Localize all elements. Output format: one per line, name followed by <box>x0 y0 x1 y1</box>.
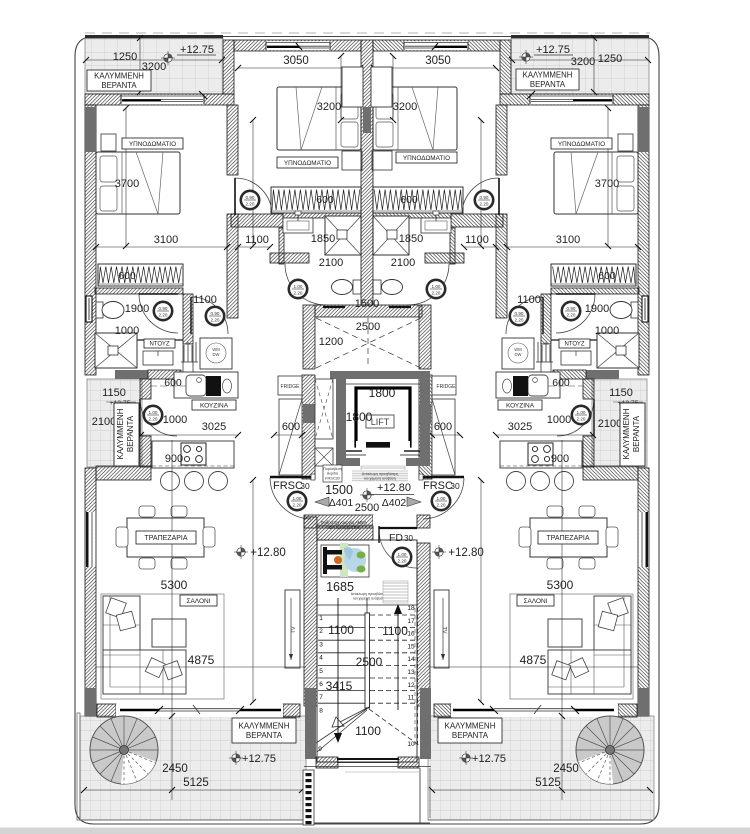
svg-text:1900: 1900 <box>585 303 609 315</box>
svg-text:1100: 1100 <box>245 234 269 246</box>
svg-text:1.00: 1.00 <box>149 410 158 415</box>
svg-text:1.00: 1.00 <box>577 410 586 415</box>
svg-text:3100: 3100 <box>556 234 580 246</box>
svg-text:TV: TV <box>291 626 297 633</box>
svg-text:2.20: 2.20 <box>149 416 158 421</box>
svg-text:4: 4 <box>319 655 323 662</box>
svg-text:2450: 2450 <box>553 763 579 775</box>
svg-text:ΒΕΡΑΝΤΑ: ΒΕΡΑΝΤΑ <box>632 415 641 452</box>
svg-text:2: 2 <box>319 628 323 635</box>
svg-text:Δ401: Δ401 <box>329 497 354 509</box>
svg-text:600: 600 <box>282 421 300 433</box>
svg-text:1500: 1500 <box>325 483 353 497</box>
svg-text:LIFT: LIFT <box>371 417 390 427</box>
svg-text:600: 600 <box>598 270 616 282</box>
svg-text:ΚΑΛΥΜΜΕΝΗ: ΚΑΛΥΜΜΕΝΗ <box>523 71 573 80</box>
svg-text:8: 8 <box>319 707 323 714</box>
svg-text:2.20: 2.20 <box>567 312 576 317</box>
svg-text:1000: 1000 <box>163 414 187 426</box>
svg-text:2100: 2100 <box>598 418 622 430</box>
svg-text:2.20: 2.20 <box>437 502 446 507</box>
svg-text:DW: DW <box>213 352 220 357</box>
svg-text:3: 3 <box>319 641 323 648</box>
svg-text:ΒΕΡΑΝΤΑ: ΒΕΡΑΝΤΑ <box>530 80 566 89</box>
svg-text:1150: 1150 <box>609 387 633 399</box>
svg-text:1.00: 1.00 <box>432 284 441 289</box>
svg-text:4875: 4875 <box>520 653 547 667</box>
svg-text:1000: 1000 <box>595 325 619 337</box>
svg-text:ΝΤΟΥΖ: ΝΤΟΥΖ <box>149 342 169 348</box>
svg-text:1900: 1900 <box>125 303 149 315</box>
svg-text:1.00: 1.00 <box>293 496 302 501</box>
svg-text:+12.80: +12.80 <box>448 547 484 559</box>
svg-text:ΒΕΡΑΝΤΑ: ΒΕΡΑΝΤΑ <box>101 81 137 90</box>
svg-text:ΒΕΡΑΝΤΑ: ΒΕΡΑΝΤΑ <box>246 731 283 740</box>
svg-text:+12.75: +12.75 <box>536 44 570 56</box>
svg-text:600: 600 <box>552 377 570 389</box>
svg-text:ΚΑΛΥΜΜΕΝΗ: ΚΑΛΥΜΜΕΝΗ <box>445 722 496 731</box>
svg-text:FD: FD <box>389 532 403 544</box>
svg-text:ΝΤΟΥΖ: ΝΤΟΥΖ <box>564 342 584 348</box>
svg-text:ΥΠΝΟΔΩΜΑΤΙΟ: ΥΠΝΟΔΩΜΑΤΙΟ <box>284 160 331 167</box>
svg-text:+12.75: +12.75 <box>472 753 506 765</box>
svg-text:FRIDGE: FRIDGE <box>281 384 301 390</box>
svg-text:0.90: 0.90 <box>515 311 524 316</box>
svg-text:1000: 1000 <box>547 414 571 426</box>
svg-text:1100: 1100 <box>355 724 381 738</box>
svg-text:Πυρόσβεση: Πυρόσβεση <box>323 467 342 471</box>
svg-text:600: 600 <box>434 421 452 433</box>
svg-text:0.90: 0.90 <box>211 311 220 316</box>
svg-text:ΣΑΛΟΝΙ: ΣΑΛΟΝΙ <box>186 598 210 605</box>
svg-text:+12.80: +12.80 <box>377 482 411 494</box>
svg-text:2.20: 2.20 <box>159 312 168 317</box>
svg-text:1850: 1850 <box>399 233 423 245</box>
svg-text:1500: 1500 <box>355 298 379 310</box>
svg-text:ΣΑΛΟΝΙ: ΣΑΛΟΝΙ <box>523 598 547 605</box>
svg-text:2500: 2500 <box>356 655 383 669</box>
svg-text:2.20: 2.20 <box>398 558 407 563</box>
svg-text:FRIDGE: FRIDGE <box>437 384 457 390</box>
svg-text:+12.75: +12.75 <box>180 44 214 56</box>
svg-text:ΒΕΡΑΝΤΑ: ΒΕΡΑΝΤΑ <box>452 731 489 740</box>
svg-text:1000: 1000 <box>115 325 139 337</box>
svg-text:2.20: 2.20 <box>211 317 220 322</box>
svg-text:1.00: 1.00 <box>398 552 407 557</box>
svg-text:2.20: 2.20 <box>294 290 303 295</box>
svg-text:0.90: 0.90 <box>567 306 576 311</box>
svg-text:θυρίδα: θυρίδα <box>327 472 338 476</box>
svg-text:30: 30 <box>404 534 413 543</box>
svg-text:2.20: 2.20 <box>432 290 441 295</box>
svg-text:ΚΑΛΥΜΜΕΝΗ: ΚΑΛΥΜΜΕΝΗ <box>94 72 144 81</box>
svg-text:ΚΑΛΥΜΜΕΝΗ: ΚΑΛΥΜΜΕΝΗ <box>622 408 631 459</box>
svg-text:Δ402: Δ402 <box>382 497 407 509</box>
svg-text:15: 15 <box>407 643 415 650</box>
svg-text:900: 900 <box>165 453 183 465</box>
svg-text:FRSC: FRSC <box>273 480 303 492</box>
svg-text:1.00: 1.00 <box>294 284 303 289</box>
svg-text:ΚΟΥΖΙΝΑ: ΚΟΥΖΙΝΑ <box>506 402 535 409</box>
svg-text:17: 17 <box>407 618 415 625</box>
svg-text:2100: 2100 <box>391 257 415 269</box>
svg-text:2.20: 2.20 <box>480 201 489 206</box>
svg-text:DW: DW <box>515 352 522 357</box>
svg-text:3025: 3025 <box>508 421 532 433</box>
svg-text:4875: 4875 <box>188 653 215 667</box>
svg-text:18: 18 <box>407 605 415 612</box>
svg-text:2.20: 2.20 <box>246 201 255 206</box>
svg-text:3050: 3050 <box>425 55 451 67</box>
svg-text:1850: 1850 <box>311 233 335 245</box>
svg-text:1800: 1800 <box>346 410 373 424</box>
svg-text:FRSC30: FRSC30 <box>325 477 340 481</box>
svg-text:ΤΡΑΠΕΖΑΡΙΑ: ΤΡΑΠΕΖΑΡΙΑ <box>546 535 589 542</box>
svg-text:2.20: 2.20 <box>515 317 524 322</box>
svg-text:Ανάκλωρη προσβάσιμη: Ανάκλωρη προσβάσιμη <box>351 592 388 596</box>
svg-text:ΚΑΛΥΜΜΕΝΗ: ΚΑΛΥΜΜΕΝΗ <box>116 408 125 459</box>
svg-text:2450: 2450 <box>162 763 188 775</box>
svg-text:0.90: 0.90 <box>159 306 168 311</box>
svg-text:ΥΠΝΟΔΩΜΑΤΙΟ: ΥΠΝΟΔΩΜΑΤΙΟ <box>129 141 176 148</box>
svg-text:ΚΟΥΖΙΝΑ: ΚΟΥΖΙΝΑ <box>200 402 229 409</box>
svg-text:14: 14 <box>407 656 415 663</box>
svg-text:0.90: 0.90 <box>480 195 489 200</box>
svg-text:3200: 3200 <box>393 101 417 113</box>
svg-text:1150: 1150 <box>102 387 126 399</box>
svg-text:1100: 1100 <box>193 294 217 306</box>
svg-text:3025: 3025 <box>202 421 226 433</box>
svg-text:1250: 1250 <box>598 53 622 65</box>
svg-text:3200: 3200 <box>142 61 166 73</box>
svg-text:30: 30 <box>450 481 460 491</box>
svg-text:+12.75: +12.75 <box>242 753 276 765</box>
svg-text:και χαμηλή ανάβαση: και χαμηλή ανάβαση <box>353 597 385 601</box>
svg-text:12: 12 <box>407 682 415 689</box>
svg-text:και χαμηλή ανάβαση: και χαμηλή ανάβαση <box>364 477 396 481</box>
svg-text:ΚΑΛΥΜΜΕΝΗ: ΚΑΛΥΜΜΕΝΗ <box>239 722 290 731</box>
svg-text:11: 11 <box>408 695 415 702</box>
svg-text:3200: 3200 <box>317 101 341 113</box>
svg-text:3700: 3700 <box>115 178 139 190</box>
svg-text:+12.80: +12.80 <box>250 547 286 559</box>
svg-text:5125: 5125 <box>535 777 561 789</box>
svg-text:2.20: 2.20 <box>577 416 586 421</box>
svg-text:3200: 3200 <box>571 56 595 68</box>
svg-text:600: 600 <box>118 270 136 282</box>
svg-text:600: 600 <box>164 377 182 389</box>
svg-text:1250: 1250 <box>113 51 137 63</box>
svg-text:600: 600 <box>400 194 418 206</box>
svg-text:5300: 5300 <box>161 578 188 592</box>
svg-text:1100: 1100 <box>517 294 541 306</box>
svg-text:Ανάκλωρη προσβάσιμη: Ανάκλωρη προσβάσιμη <box>362 472 399 476</box>
svg-text:1.00: 1.00 <box>437 496 446 501</box>
svg-text:1: 1 <box>319 615 323 622</box>
svg-text:ΥΠΝΟΔΩΜΑΤΙΟ: ΥΠΝΟΔΩΜΑΤΙΟ <box>403 155 450 162</box>
svg-text:ΒΕΡΑΝΤΑ: ΒΕΡΑΝΤΑ <box>126 415 135 452</box>
svg-text:13: 13 <box>407 669 415 676</box>
svg-text:3700: 3700 <box>595 178 619 190</box>
svg-text:1100: 1100 <box>465 234 489 246</box>
svg-text:5125: 5125 <box>183 777 209 789</box>
svg-text:5300: 5300 <box>547 578 574 592</box>
svg-text:2100: 2100 <box>319 257 343 269</box>
svg-text:6: 6 <box>319 681 323 688</box>
svg-text:1100: 1100 <box>382 624 408 638</box>
svg-text:900: 900 <box>551 453 569 465</box>
svg-text:FRSC: FRSC <box>423 480 453 492</box>
svg-text:TV: TV <box>441 626 447 633</box>
svg-text:0.90: 0.90 <box>246 195 255 200</box>
svg-text:3050: 3050 <box>283 55 309 67</box>
svg-text:3100: 3100 <box>154 234 178 246</box>
svg-text:10: 10 <box>407 741 415 748</box>
svg-text:1800: 1800 <box>369 386 396 400</box>
svg-text:9: 9 <box>318 746 322 753</box>
svg-text:ΥΠΝΟΔΩΜΑΤΙΟ: ΥΠΝΟΔΩΜΑΤΙΟ <box>558 141 605 148</box>
svg-text:2500: 2500 <box>356 321 380 333</box>
svg-text:2.20: 2.20 <box>293 502 302 507</box>
svg-text:5: 5 <box>319 668 323 675</box>
svg-text:600: 600 <box>316 194 334 206</box>
svg-text:7: 7 <box>319 694 323 701</box>
svg-text:16: 16 <box>407 631 415 638</box>
svg-text:1100: 1100 <box>328 623 354 637</box>
svg-text:30: 30 <box>300 481 310 491</box>
svg-text:2100: 2100 <box>92 416 116 428</box>
svg-text:1200: 1200 <box>319 336 343 348</box>
svg-text:2500: 2500 <box>355 502 379 514</box>
svg-text:ΤΡΑΠΕΖΑΡΙΑ: ΤΡΑΠΕΖΑΡΙΑ <box>144 535 187 542</box>
svg-text:3415: 3415 <box>326 679 353 693</box>
